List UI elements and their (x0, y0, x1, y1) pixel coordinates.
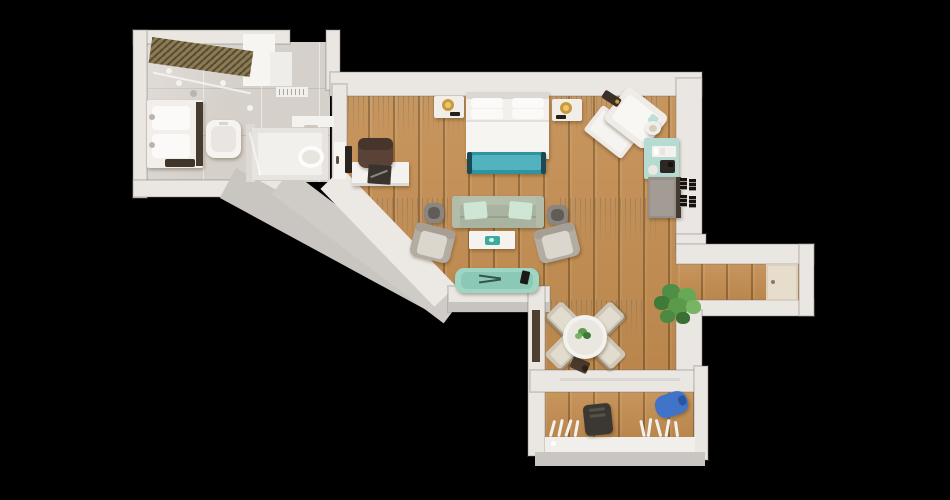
centerpiece-3 (575, 333, 582, 339)
pillow-3 (512, 98, 544, 108)
pillow-2 (471, 109, 503, 119)
armchair-cushion (541, 230, 574, 260)
basin-2 (152, 134, 190, 158)
leaf-5 (686, 300, 701, 314)
shower-light-3 (220, 80, 226, 86)
bathtub-inner (302, 150, 320, 164)
bottle-2 (660, 148, 665, 155)
nightstand-left (434, 96, 464, 118)
main-wall-right (676, 78, 702, 250)
bench-end-right (541, 152, 546, 174)
menu-frame-4 (689, 196, 696, 208)
closet-shelf-band (530, 370, 702, 392)
vanity-dark-edge (196, 102, 203, 166)
laptop (367, 164, 391, 185)
board-pad (677, 394, 688, 406)
window-bench (455, 268, 539, 293)
vent-slats (279, 89, 305, 95)
decor-dot (489, 238, 494, 242)
sofa (452, 196, 544, 228)
hanger (647, 418, 653, 437)
pillow-1 (471, 98, 503, 108)
vanity (147, 100, 203, 168)
flush-buttons (219, 122, 228, 125)
closet-wall-bottom (535, 452, 705, 466)
closet-wall-right (694, 366, 708, 460)
menu-frame-1 (680, 178, 687, 190)
bag-strap-1 (589, 407, 605, 412)
bathtub-alcove (252, 128, 328, 180)
cabinet-front (650, 180, 674, 216)
pouf-center (649, 125, 657, 132)
duct-column-step (270, 52, 292, 86)
hanger (674, 421, 679, 437)
menu-frame-3 (680, 195, 687, 207)
sofa-pillow-right (508, 201, 532, 220)
hanger (655, 419, 663, 437)
leaf-6 (660, 310, 675, 323)
hanger (639, 420, 645, 437)
hall-wall-top (676, 244, 814, 264)
bag-strap-2 (589, 413, 605, 418)
wall-menu-frames (680, 178, 697, 211)
basin-1 (152, 106, 190, 130)
shower-light-1 (166, 68, 172, 74)
shower-drain (190, 90, 197, 97)
hook-1 (548, 393, 552, 397)
floor-plan-canvas (0, 0, 950, 500)
hanger-group-right (639, 416, 683, 438)
bench-cushion (472, 155, 541, 170)
toilet (206, 120, 241, 158)
bathroom-wall-left (133, 30, 147, 198)
bed-foot-bench (467, 152, 546, 174)
faucet-2 (149, 142, 155, 148)
lamp-glow (445, 102, 451, 108)
minibar-cabinet (648, 177, 681, 218)
towel-shelf (292, 116, 334, 127)
entry-door (766, 264, 798, 301)
hanger (557, 419, 564, 437)
hook-2 (555, 394, 559, 398)
duvet-fold (466, 120, 549, 122)
hall-wall-end (799, 244, 814, 316)
laptop-hinge (370, 170, 388, 178)
side-table-top (428, 207, 440, 219)
shower-light-2 (176, 80, 182, 86)
chair-back (358, 138, 393, 150)
potted-plant (654, 284, 702, 326)
closet-door-knob (551, 441, 556, 446)
dock (450, 112, 460, 116)
bench-end-left (467, 152, 472, 174)
side-table-left (424, 203, 444, 223)
wall-tv (345, 146, 352, 173)
hanger-group-left (551, 416, 583, 437)
hamper (165, 159, 195, 167)
hanger (664, 419, 670, 437)
tray-dot (668, 162, 673, 167)
lamp-glow (563, 105, 569, 111)
side-table-top (551, 209, 564, 221)
armchair-cushion (416, 230, 448, 260)
coffee-table (469, 231, 515, 249)
kitchenette-unit (644, 138, 679, 179)
hook-knob (614, 99, 620, 105)
ac-vent (276, 87, 308, 97)
kettle (648, 165, 658, 175)
door-handle (336, 156, 339, 164)
dining-table (563, 315, 607, 359)
centerpiece-2 (583, 332, 591, 339)
side-table-right (547, 205, 568, 225)
desk-chair (358, 138, 393, 168)
entry-door-handle (771, 280, 775, 284)
pillow-4 (512, 109, 544, 119)
sofa-arm-right (536, 196, 544, 228)
sofa-pillow-left (463, 201, 487, 220)
king-bed (466, 92, 549, 159)
toilet-seat (211, 126, 236, 152)
hanger (574, 420, 580, 437)
closet-hooks (548, 393, 560, 403)
bottle-1 (654, 148, 658, 155)
hanger (564, 419, 572, 437)
faucet-1 (149, 114, 155, 120)
sofa-arm-left (452, 196, 460, 228)
travel-bag (582, 403, 613, 437)
ceiling-light (247, 105, 253, 111)
wall-niche (532, 310, 540, 362)
dock (556, 115, 566, 119)
leaf-7 (676, 312, 690, 324)
menu-frame-2 (689, 179, 696, 191)
nightstand-right (552, 99, 582, 121)
shelf-edge-line (560, 378, 680, 381)
pouf (645, 121, 661, 135)
